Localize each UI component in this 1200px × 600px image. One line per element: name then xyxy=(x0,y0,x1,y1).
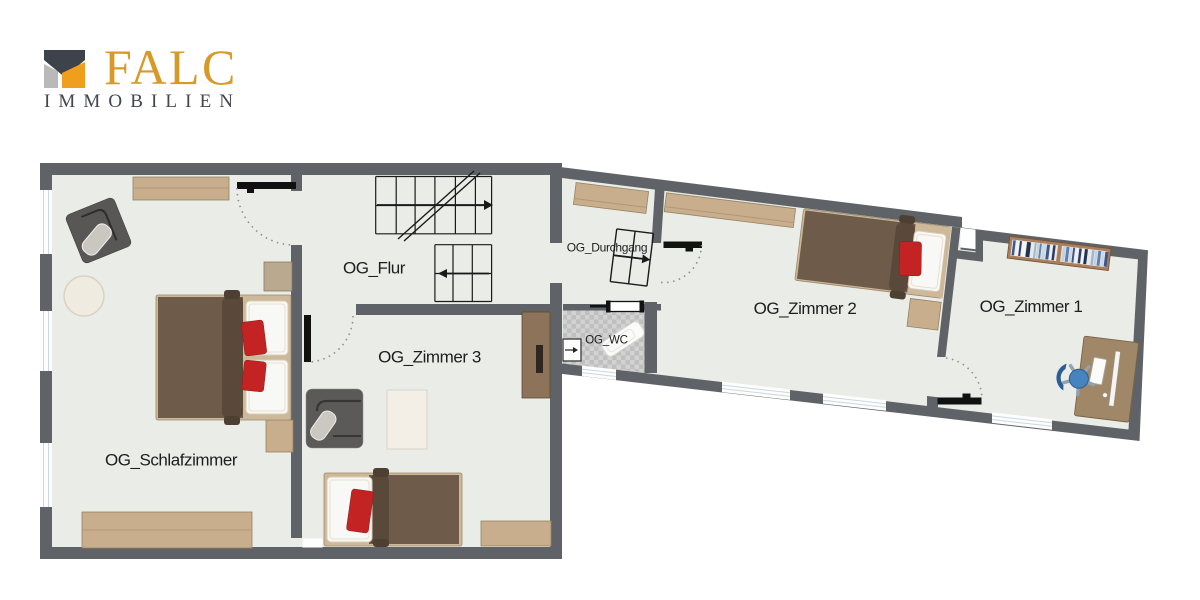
svg-text:OG_Durchgang: OG_Durchgang xyxy=(567,241,647,255)
svg-text:OG_Zimmer 3: OG_Zimmer 3 xyxy=(378,348,481,367)
svg-text:OG_Schlafzimmer: OG_Schlafzimmer xyxy=(105,451,238,470)
svg-text:OG_Zimmer 1: OG_Zimmer 1 xyxy=(980,297,1083,316)
svg-text:OG_Flur: OG_Flur xyxy=(343,259,406,278)
svg-text:OG_Zimmer 2: OG_Zimmer 2 xyxy=(754,299,857,318)
svg-text:OG_WC: OG_WC xyxy=(585,335,627,347)
